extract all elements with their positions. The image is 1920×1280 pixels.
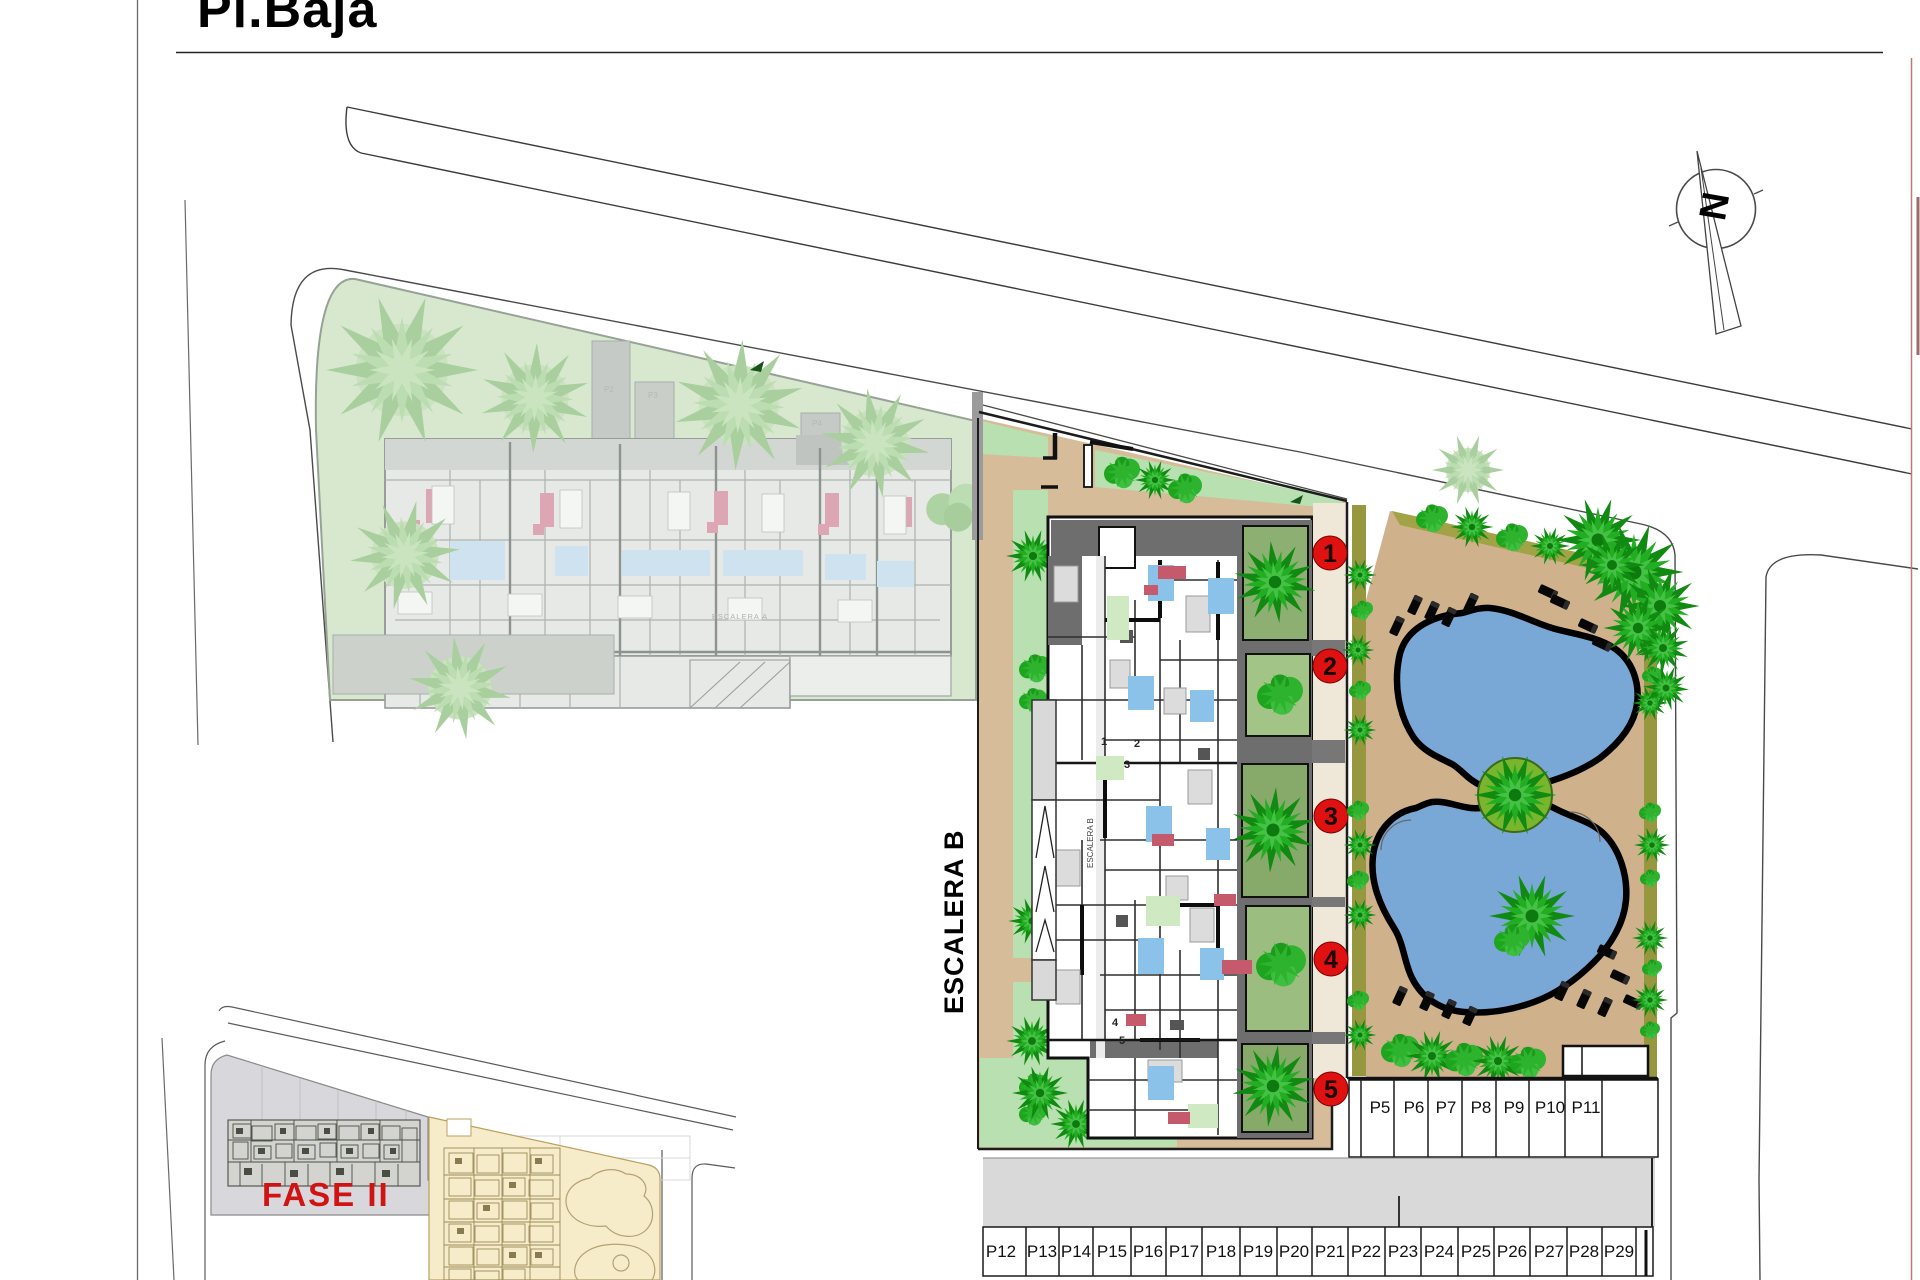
svg-text:P5: P5 bbox=[1370, 1098, 1391, 1117]
svg-text:1: 1 bbox=[1101, 736, 1107, 748]
svg-text:P22: P22 bbox=[1351, 1242, 1381, 1261]
svg-text:P27: P27 bbox=[1534, 1242, 1564, 1261]
svg-text:P4: P4 bbox=[812, 419, 822, 428]
svg-text:P18: P18 bbox=[1206, 1242, 1236, 1261]
svg-text:ESCALERA A: ESCALERA A bbox=[712, 612, 768, 621]
svg-text:P9: P9 bbox=[1504, 1098, 1525, 1117]
svg-text:P23: P23 bbox=[1388, 1242, 1418, 1261]
svg-text:P28: P28 bbox=[1569, 1242, 1599, 1261]
svg-text:P2: P2 bbox=[604, 385, 614, 394]
svg-text:4: 4 bbox=[1324, 946, 1338, 974]
svg-text:P6: P6 bbox=[1404, 1098, 1425, 1117]
svg-text:P3: P3 bbox=[648, 391, 658, 400]
svg-text:5: 5 bbox=[1324, 1076, 1338, 1104]
svg-text:Pl.Baja: Pl.Baja bbox=[197, 0, 377, 39]
svg-text:P15: P15 bbox=[1097, 1242, 1127, 1261]
svg-text:ESCALERA B: ESCALERA B bbox=[1086, 818, 1095, 868]
svg-text:P16: P16 bbox=[1133, 1242, 1163, 1261]
svg-text:P26: P26 bbox=[1497, 1242, 1527, 1261]
svg-text:P10: P10 bbox=[1535, 1098, 1565, 1117]
svg-text:P11: P11 bbox=[1572, 1098, 1601, 1117]
svg-text:P20: P20 bbox=[1279, 1242, 1309, 1261]
svg-text:2: 2 bbox=[1323, 653, 1337, 681]
svg-text:ESCALERA B: ESCALERA B bbox=[939, 829, 969, 1014]
svg-text:P13: P13 bbox=[1027, 1242, 1057, 1261]
svg-text:FASE II: FASE II bbox=[262, 1176, 390, 1213]
svg-text:P19: P19 bbox=[1243, 1242, 1273, 1261]
svg-text:P8: P8 bbox=[1471, 1098, 1492, 1117]
svg-text:4: 4 bbox=[1112, 1017, 1119, 1029]
svg-text:5: 5 bbox=[1119, 1035, 1125, 1047]
svg-text:P24: P24 bbox=[1424, 1242, 1454, 1261]
svg-text:P21: P21 bbox=[1315, 1242, 1345, 1261]
svg-text:P14: P14 bbox=[1061, 1242, 1091, 1261]
svg-text:1: 1 bbox=[1323, 540, 1337, 568]
svg-text:3: 3 bbox=[1324, 803, 1338, 831]
svg-text:P17: P17 bbox=[1169, 1242, 1199, 1261]
svg-text:3: 3 bbox=[1124, 759, 1130, 771]
svg-text:P12: P12 bbox=[986, 1242, 1016, 1261]
svg-text:2: 2 bbox=[1134, 738, 1140, 750]
svg-text:P25: P25 bbox=[1461, 1242, 1491, 1261]
svg-text:P29: P29 bbox=[1604, 1242, 1634, 1261]
svg-text:P7: P7 bbox=[1436, 1098, 1457, 1117]
